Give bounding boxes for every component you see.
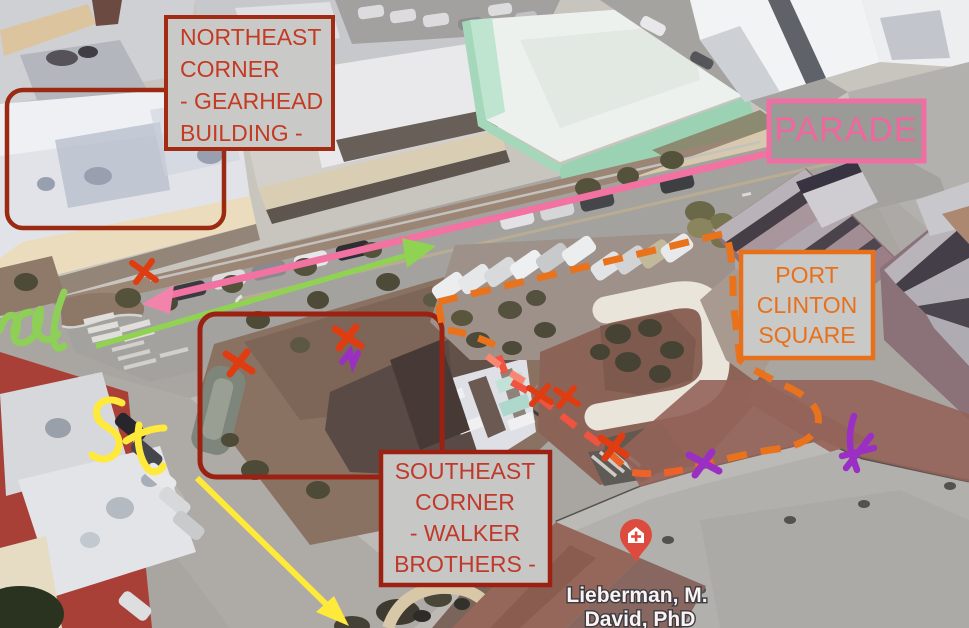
svg-text:David, PhD: David, PhD: [585, 608, 696, 628]
svg-text:BROTHERS -: BROTHERS -: [394, 551, 536, 577]
svg-text:Lieberman, M.: Lieberman, M.: [566, 584, 707, 607]
svg-text:NORTHEAST: NORTHEAST: [180, 24, 321, 50]
svg-text:PORT: PORT: [775, 262, 838, 288]
svg-text:SOUTHEAST: SOUTHEAST: [395, 458, 536, 484]
svg-text:- GEARHEAD: - GEARHEAD: [180, 88, 323, 114]
svg-text:- WALKER: - WALKER: [410, 520, 520, 546]
svg-text:CORNER: CORNER: [180, 56, 280, 82]
svg-text:PARADE: PARADE: [774, 111, 917, 149]
svg-text:CORNER: CORNER: [415, 489, 515, 515]
svg-text:BUILDING -: BUILDING -: [180, 120, 303, 146]
svg-text:CLINTON: CLINTON: [757, 292, 858, 318]
svg-text:SQUARE: SQUARE: [758, 322, 855, 348]
